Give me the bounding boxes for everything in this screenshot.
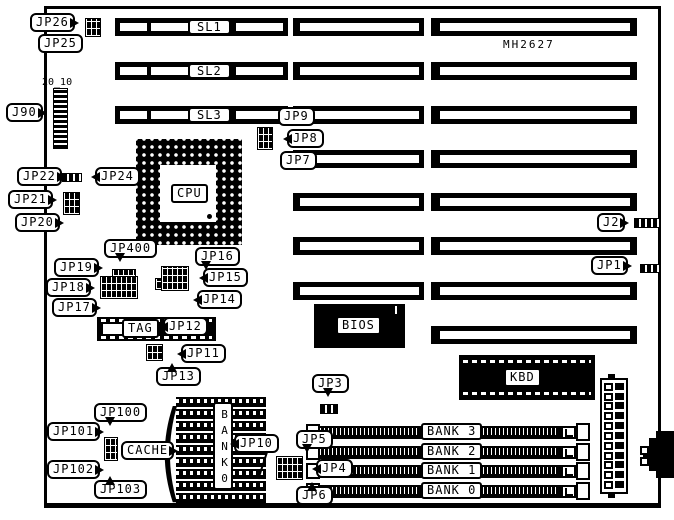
isa-slot-row2-right	[431, 62, 637, 80]
cache-chip	[176, 493, 266, 503]
simm-label-bank3: BANK 3	[421, 423, 482, 440]
power-pin-row	[604, 393, 624, 401]
jumper-block-jp4	[276, 456, 303, 480]
power-pin-row	[604, 422, 624, 430]
power-pin-row	[604, 452, 624, 460]
motherboard-jumper-diagram: SL1 SL2 SL3 MH2627 JP26 JP25 20_10 J90 J…	[0, 0, 674, 520]
isa-slot-row1-mid	[293, 18, 424, 36]
callout-jp7: JP7	[280, 151, 317, 170]
callout-jp102: JP102	[47, 460, 100, 479]
board-model-text: MH2627	[503, 38, 555, 51]
callout-jp20: JP20	[15, 213, 60, 232]
power-pin-row	[604, 442, 624, 450]
slot-label-sl2: SL2	[188, 63, 231, 79]
callout-jp19: JP19	[54, 258, 99, 277]
callout-jp1: JP1	[591, 256, 628, 275]
power-pin-row	[604, 481, 624, 489]
jumper-block-jp15-tab	[155, 278, 162, 290]
cpu-label: CPU	[171, 184, 208, 203]
jumper-block-jp18	[100, 276, 138, 299]
isa-slot-row5-right	[431, 193, 637, 211]
din-notch-bottom	[640, 457, 649, 466]
bios-pin1-notch	[395, 306, 397, 314]
callout-j2: J2	[597, 213, 625, 232]
simm-label-bank1: BANK 1	[421, 462, 482, 479]
callout-j90: J90	[6, 103, 43, 122]
kbd-label: KBD	[504, 368, 541, 387]
tag-chip-slot	[103, 324, 124, 334]
isa-slot-row4-right	[431, 150, 637, 168]
isa-slot-row5-mid	[293, 193, 424, 211]
callout-jp3: JP3	[312, 374, 349, 393]
callout-jp12: JP12	[163, 317, 208, 336]
pin-header-j2	[634, 218, 661, 228]
callout-jp101: JP101	[47, 422, 100, 441]
jumper-block-jp15	[161, 266, 189, 291]
slot-label-sl3: SL3	[188, 107, 231, 123]
isa-slot-row6-right	[431, 237, 637, 255]
isa-slot-row7-mid	[293, 282, 424, 300]
power-pin-row	[604, 461, 624, 469]
pin-header-jp1	[640, 264, 661, 273]
callout-jp4: JP4	[316, 459, 353, 478]
callout-jp400: JP400	[104, 239, 157, 258]
din-notch-top	[640, 446, 649, 455]
jumper-block-jp26	[85, 18, 101, 37]
simm-label-bank0: BANK 0	[421, 482, 482, 499]
callout-jp25: JP25	[38, 34, 83, 53]
power-pin-row	[604, 471, 624, 479]
isa-slot-row8-right	[431, 326, 637, 344]
callout-jp26: JP26	[30, 13, 75, 32]
isa-slot-row6-mid	[293, 237, 424, 255]
jumper-block-jp3	[320, 404, 338, 414]
callout-jp22: JP22	[17, 167, 62, 186]
power-pin-row	[604, 383, 624, 391]
power-connector	[600, 378, 628, 494]
callout-jp24: JP24	[95, 167, 140, 186]
callout-jp11: JP11	[181, 344, 226, 363]
power-pin-row	[604, 402, 624, 410]
callout-jp21: JP21	[8, 190, 53, 209]
callout-jp15: JP15	[203, 268, 248, 287]
callout-jp100: JP100	[94, 403, 147, 422]
callout-jp103: JP103	[94, 480, 147, 499]
power-pin-row	[604, 412, 624, 420]
callout-jp14: JP14	[197, 290, 242, 309]
bios-label: BIOS	[336, 316, 381, 335]
slot-label-sl1: SL1	[188, 19, 231, 35]
callout-jp16: JP16	[195, 247, 240, 266]
jumper-block-jp8	[257, 127, 273, 150]
pin-header-j90	[53, 88, 68, 149]
jumper-block-jp100s	[104, 437, 118, 461]
callout-jp8: JP8	[287, 129, 324, 148]
cpu-pin1-dot	[207, 214, 212, 219]
callout-jp9: JP9	[278, 107, 315, 126]
simm-label-bank2: BANK 2	[421, 443, 482, 460]
j90-pin-numbers: 20_10	[42, 77, 72, 88]
isa-slot-row3-right	[431, 106, 637, 124]
jumper-block-jp21	[63, 192, 80, 215]
callout-jp13: JP13	[156, 367, 201, 386]
jumper-block-jp11	[146, 344, 163, 361]
callout-jp17: JP17	[52, 298, 97, 317]
isa-slot-row1-right	[431, 18, 637, 36]
callout-jp18: JP18	[46, 278, 91, 297]
callout-cache: CACHE	[121, 441, 174, 460]
power-connector-key-bottom	[608, 493, 615, 498]
power-pin-row	[604, 432, 624, 440]
callout-jp5: JP5	[296, 430, 333, 449]
callout-jp10: JP10	[234, 434, 279, 453]
callout-jp6: JP6	[296, 486, 333, 505]
isa-slot-row7-right	[431, 282, 637, 300]
isa-slot-row2-mid	[293, 62, 424, 80]
